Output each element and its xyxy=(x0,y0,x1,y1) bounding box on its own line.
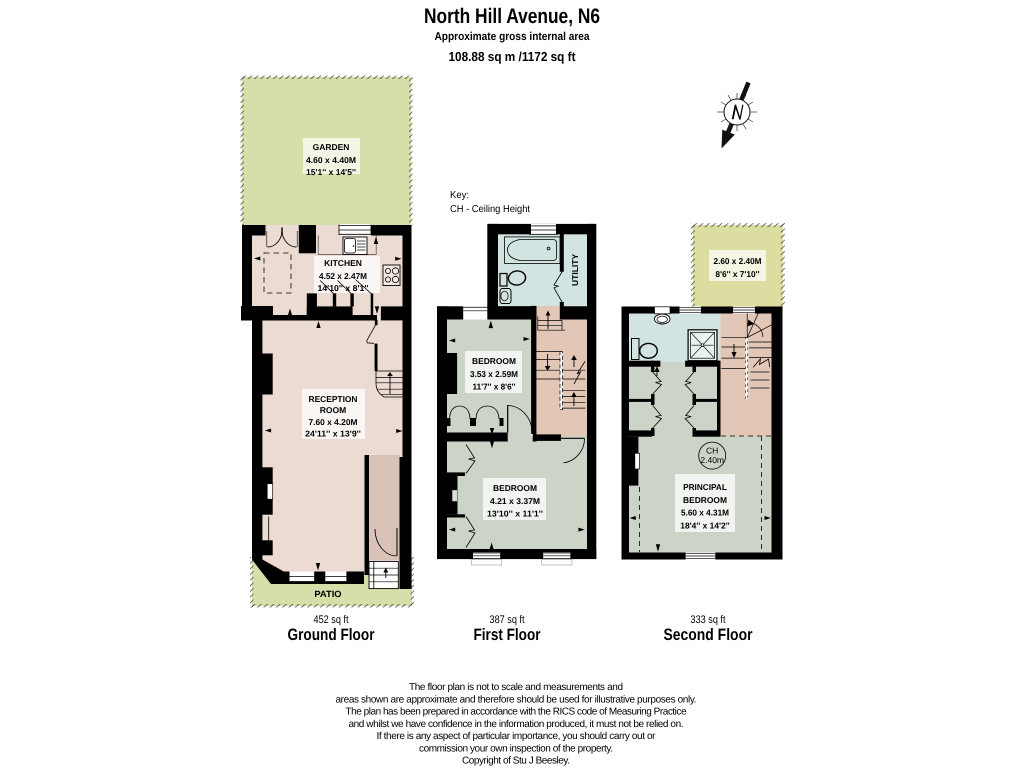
svg-text:The plan has been prepared in: The plan has been prepared in accordance… xyxy=(346,707,687,718)
svg-text:13'10'' x 11'1'': 13'10'' x 11'1'' xyxy=(487,509,543,519)
svg-text:UTILITY: UTILITY xyxy=(570,254,580,286)
svg-text:387 sq ft: 387 sq ft xyxy=(490,614,525,626)
svg-text:KITCHEN: KITCHEN xyxy=(324,258,362,268)
svg-text:452 sq ft: 452 sq ft xyxy=(314,614,349,626)
svg-text:15'1'' x 14'5'': 15'1'' x 14'5'' xyxy=(306,167,356,177)
svg-text:areas shown are approximate an: areas shown are approximate and therefor… xyxy=(336,694,697,705)
svg-text:CH: CH xyxy=(706,446,718,456)
svg-text:CH - Ceiling Height: CH - Ceiling Height xyxy=(450,204,530,215)
svg-text:Copyright of Stu J Beesley.: Copyright of Stu J Beesley. xyxy=(462,756,570,767)
svg-text:PRINCIPAL: PRINCIPAL xyxy=(683,482,727,492)
svg-text:and whilst we have confidence: and whilst we have confidence in the inf… xyxy=(349,719,684,730)
svg-text:333 sq ft: 333 sq ft xyxy=(691,614,726,626)
svg-text:2.60 x 2.40M: 2.60 x 2.40M xyxy=(714,256,762,266)
svg-text:8'6'' x 7'10'': 8'6'' x 7'10'' xyxy=(715,269,759,279)
svg-text:BEDROOM: BEDROOM xyxy=(493,483,537,493)
svg-text:7.60 x 4.20M: 7.60 x 4.20M xyxy=(309,417,358,427)
svg-text:Second Floor: Second Floor xyxy=(664,626,753,644)
svg-text:The floor plan is not to scale: The floor plan is not to scale and measu… xyxy=(409,682,623,693)
svg-text:If there is any aspect of part: If there is any aspect of particular imp… xyxy=(377,731,657,742)
svg-text:3.53 x 2.59M: 3.53 x 2.59M xyxy=(470,369,518,379)
svg-text:18'4'' x 14'2'': 18'4'' x 14'2'' xyxy=(680,521,729,531)
svg-text:5.60 x 4.31M: 5.60 x 4.31M xyxy=(681,508,729,518)
svg-text:ROOM: ROOM xyxy=(320,405,346,415)
svg-text:North Hill Avenue, N6: North Hill Avenue, N6 xyxy=(424,5,600,28)
svg-text:108.88 sq m /1172 sq ft: 108.88 sq m /1172 sq ft xyxy=(449,49,577,64)
svg-text:4.52 x 2.47M: 4.52 x 2.47M xyxy=(319,271,367,281)
svg-text:commission your own inspection: commission your own inspection of the pr… xyxy=(419,743,613,754)
svg-text:GARDEN: GARDEN xyxy=(313,142,350,152)
svg-text:RECEPTION: RECEPTION xyxy=(309,394,358,404)
svg-text:Key:: Key: xyxy=(450,190,469,201)
svg-text:Approximate gross internal are: Approximate gross internal area xyxy=(435,31,591,43)
svg-text:First Floor: First Floor xyxy=(474,626,541,644)
svg-text:2.40m: 2.40m xyxy=(700,455,724,465)
svg-text:BEDROOM: BEDROOM xyxy=(472,356,516,366)
svg-text:24'11'' x 13'9'': 24'11'' x 13'9'' xyxy=(305,429,361,439)
svg-text:BEDROOM: BEDROOM xyxy=(683,495,727,505)
svg-text:Ground Floor: Ground Floor xyxy=(288,626,375,644)
svg-text:11'7'' x 8'6'': 11'7'' x 8'6'' xyxy=(473,382,516,392)
svg-text:4.21 x 3.37M: 4.21 x 3.37M xyxy=(490,496,540,506)
svg-text:PATIO: PATIO xyxy=(314,589,341,599)
svg-text:4.60 x 4.40M: 4.60 x 4.40M xyxy=(306,155,356,165)
